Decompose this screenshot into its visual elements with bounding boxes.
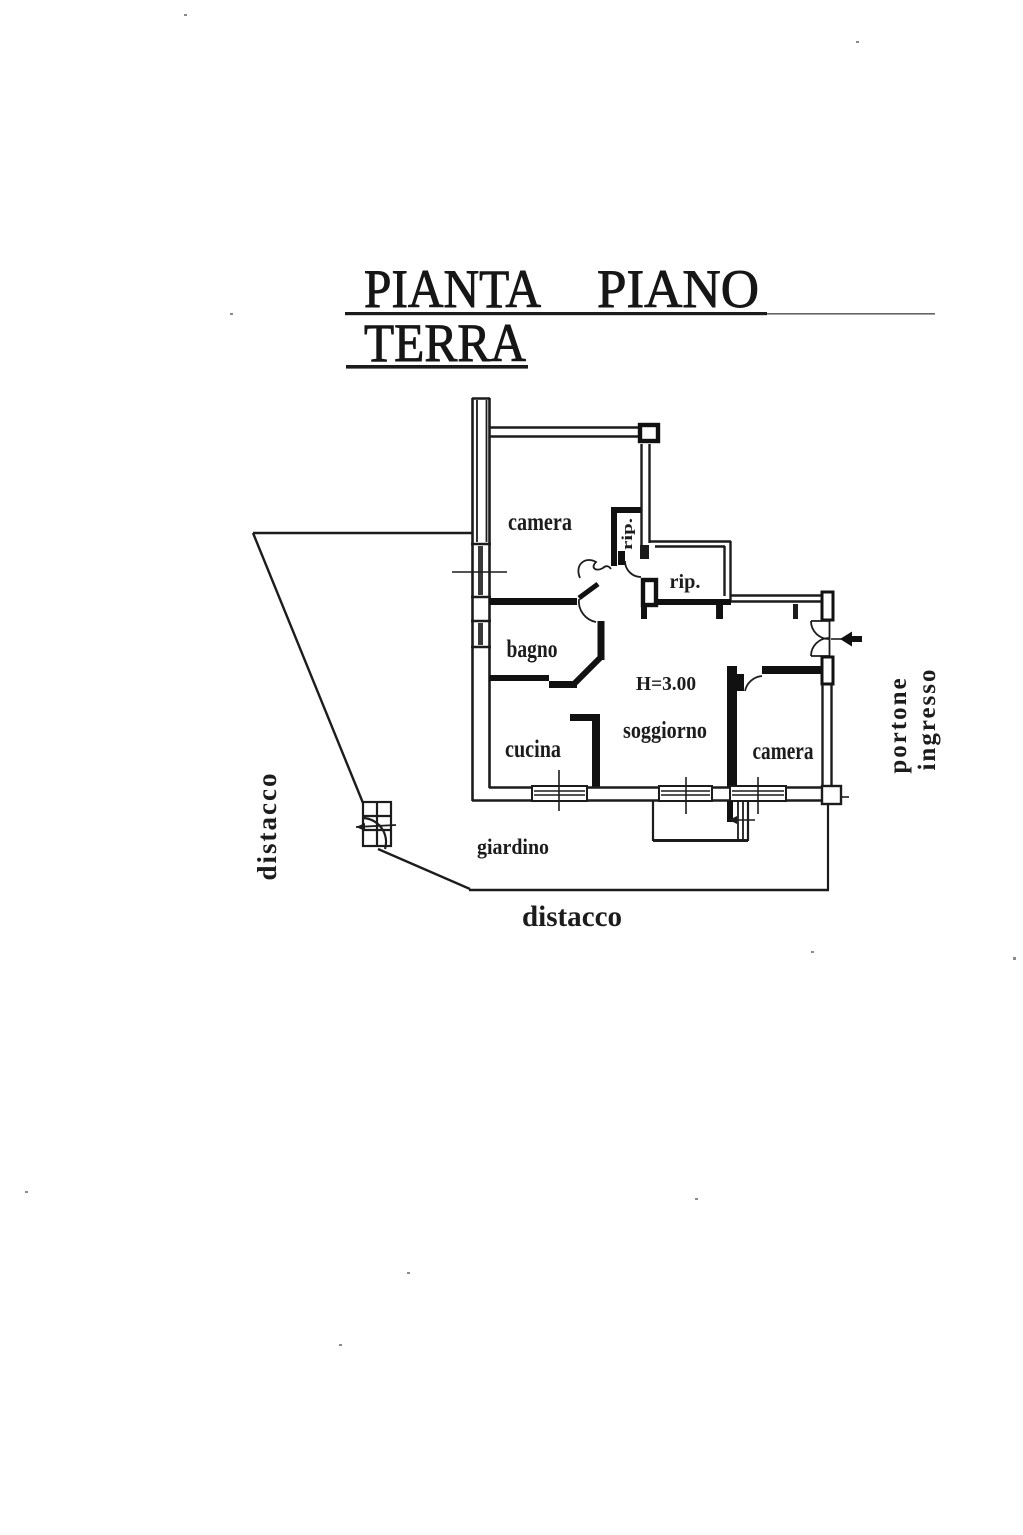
svg-text:H=3.00: H=3.00: [636, 673, 696, 695]
svg-text:portone: portone: [885, 676, 912, 773]
svg-text:rip.: rip.: [620, 518, 636, 550]
svg-text:giardino: giardino: [477, 834, 549, 859]
svg-text:distacco: distacco: [252, 772, 282, 881]
svg-text:PIANO: PIANO: [597, 259, 759, 319]
svg-text:soggiorno: soggiorno: [623, 718, 707, 744]
svg-text:bagno: bagno: [507, 636, 558, 663]
svg-text:PIANTA: PIANTA: [364, 259, 541, 319]
svg-text:camera: camera: [753, 738, 814, 765]
svg-text:camera: camera: [508, 509, 572, 536]
svg-text:distacco: distacco: [522, 900, 622, 933]
svg-text:rip.: rip.: [670, 571, 701, 593]
svg-text:TERRA: TERRA: [364, 313, 526, 373]
svg-text:cucina: cucina: [505, 736, 561, 763]
svg-text:ingresso: ingresso: [914, 667, 941, 770]
